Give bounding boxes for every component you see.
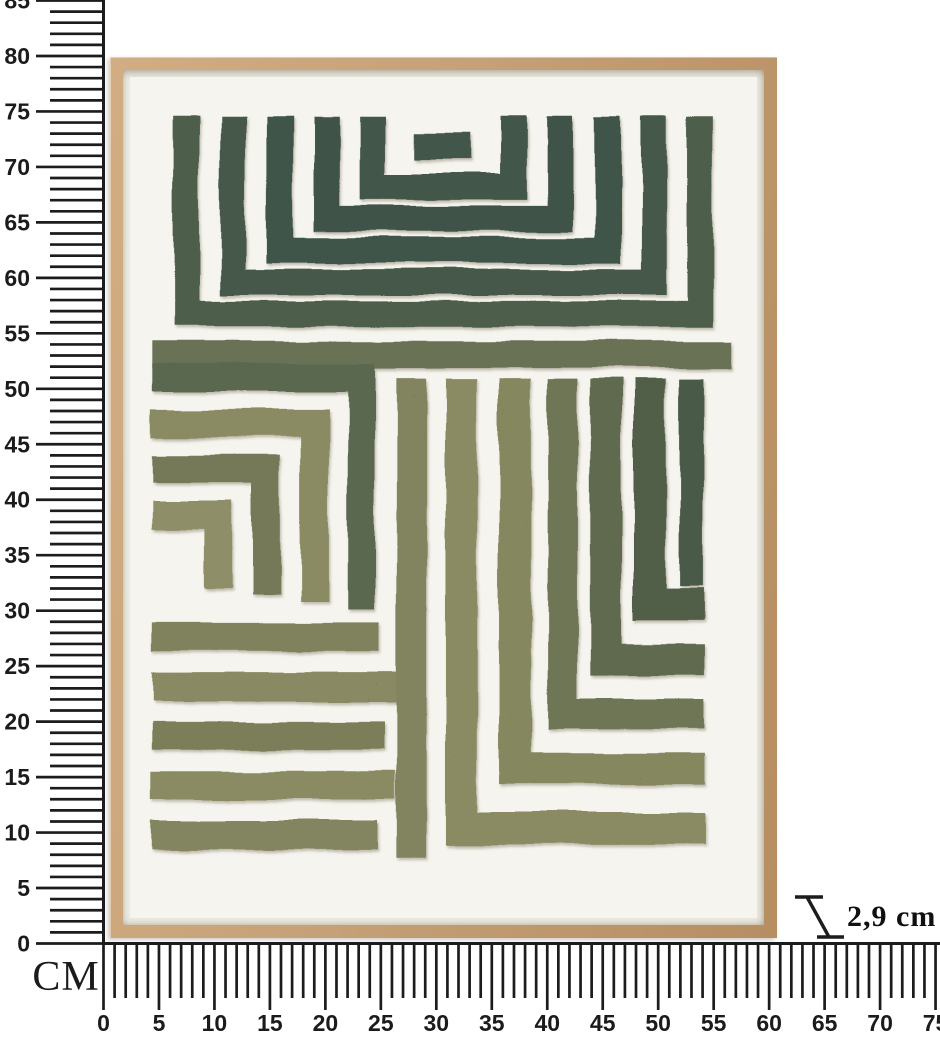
- ruler-label: 70: [4, 154, 30, 180]
- ruler-label: 35: [4, 542, 30, 568]
- depth-value: 2,9 cm: [847, 900, 936, 934]
- ruler-label: 30: [424, 1010, 450, 1036]
- ruler-label: 65: [4, 209, 30, 235]
- ruler-label: 5: [153, 1010, 166, 1036]
- ruler-label: 50: [4, 376, 30, 402]
- ruler-label: 15: [257, 1010, 283, 1036]
- depth-icon: [792, 892, 846, 942]
- ruler-label: 15: [4, 764, 30, 790]
- ruler-label: 75: [923, 1010, 940, 1036]
- ruler-label: 85: [4, 0, 30, 14]
- ruler-label: 60: [756, 1010, 782, 1036]
- ruler-label: 25: [368, 1010, 394, 1036]
- ruler-label: 5: [17, 875, 30, 901]
- ruler-label: 60: [4, 265, 30, 291]
- ruler-label: 10: [4, 820, 30, 846]
- depth-annotation: 2,9 cm: [792, 891, 936, 943]
- product-measurement-image: 0510152025303540455055606570758085051015…: [0, 0, 940, 1038]
- ruler-unit-label: CM: [32, 954, 99, 1000]
- ruler-label: 20: [313, 1010, 339, 1036]
- ruler-label: 45: [4, 431, 30, 457]
- ruler-label: 65: [812, 1010, 838, 1036]
- ruler-label: 45: [590, 1010, 616, 1036]
- ruler-label: 40: [4, 487, 30, 513]
- left-corner-ring-4: [152, 515, 218, 589]
- ruler-label: 75: [4, 98, 30, 124]
- ruler-label: 50: [645, 1010, 671, 1036]
- ruler-label: 80: [4, 43, 30, 69]
- ruler-label: 0: [97, 1010, 110, 1036]
- ruler-label: 25: [4, 653, 30, 679]
- ruler-label: 40: [534, 1010, 560, 1036]
- picture-frame: [110, 57, 777, 938]
- ruler-label: 30: [4, 598, 30, 624]
- ruler-label: 0: [17, 931, 30, 957]
- ruler-label: 10: [202, 1010, 228, 1036]
- ruler-label: 55: [4, 320, 30, 346]
- ruler-label: 20: [4, 709, 30, 735]
- ruler-label: 55: [701, 1010, 727, 1036]
- ruler-label: 70: [867, 1010, 893, 1036]
- frame-inner-gap: [123, 70, 764, 925]
- art-canvas: [130, 77, 757, 918]
- ruler-label: 35: [479, 1010, 505, 1036]
- artwork-pattern: [130, 77, 757, 918]
